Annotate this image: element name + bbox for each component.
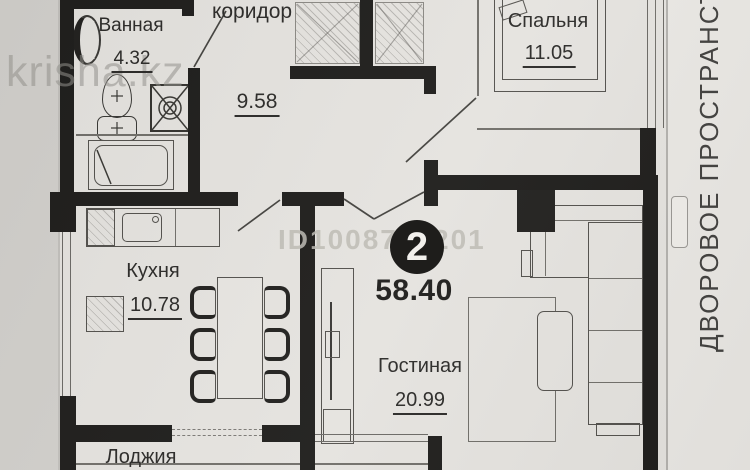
closet-left [295,2,360,64]
corridor-area: 9.58 [235,90,280,114]
double-door-leaf-left [344,199,374,219]
toilet-tank [97,116,137,141]
living-room-window [315,434,428,442]
bedroom-door-leaf [406,98,476,162]
bathroom-label: Ванная [98,15,163,37]
listing-id-watermark: ID1008723201 [278,224,486,256]
kitchen-label: Кухня [126,260,180,283]
wall-bathroom-right [188,68,200,198]
dining-table [217,277,263,399]
wall-loggia-left-seg [74,425,172,442]
tv-console-box [325,331,340,358]
total-area: 58.40 [375,274,453,308]
room-count: 2 [406,227,428,267]
bathtub-inner [94,145,168,186]
living-room-area: 20.99 [393,389,447,412]
wall-bottom-right-corner [428,436,442,470]
corridor-label: коридор [212,0,292,24]
floor-plan-photo: krisha.kz ID1008723201 2 58.40 Ванная 4.… [0,0,750,470]
dining-chair [190,328,216,361]
kitchen-stove [87,209,115,246]
dining-chair [190,286,216,319]
wall-left-outer [60,0,74,198]
wall-bedroom-bottom [424,175,656,190]
wall-shaft-block [517,190,555,232]
sofa-foot-rest [596,423,640,436]
bathroom-area: 4.32 [112,48,153,70]
double-door-leaf-right [374,192,424,219]
bedroom-label: Спальня [508,10,588,33]
courtyard-side-label: ДВОРОВОЕ ПРОСТРАНСТВО [694,0,725,352]
wall-closet-divider [360,0,373,76]
kitchen-window [62,232,71,396]
kitchen-door-leaf [238,200,280,231]
room-count-badge: 2 [390,220,444,274]
bathroom-counter-line [76,134,189,136]
wall-loggia-left [60,396,76,470]
loggia-label: Лоджия [106,446,177,469]
dining-chair [190,370,216,403]
dining-chair [264,370,290,403]
dining-chair [264,286,290,319]
wall-right-outer [643,175,658,470]
facade-balcony-detail [671,196,688,248]
counter-divider [175,209,176,246]
bedroom-wall-face-bottom [477,128,647,130]
wall-closet-cap [424,66,436,94]
closet-right [375,2,424,64]
balcony-door-threshold [172,429,262,436]
sofa-side-pillow [521,250,533,277]
bedroom-area: 11.05 [523,42,576,65]
dining-chair [264,328,290,361]
kitchen-faucet [152,216,159,223]
fridge [86,296,124,332]
coffee-table [537,311,573,391]
living-room-label: Гостиная [378,355,462,378]
sofa-seam-1 [589,278,642,279]
kitchen-area: 10.78 [128,294,182,317]
wall-bedroom-window-block [640,128,656,178]
facade-outline-line [666,0,668,470]
wall-kitchen-top [60,192,238,206]
sofa-seam-2 [589,330,642,331]
wall-bathroom-right-stub [182,0,194,16]
bedroom-wall-face-left [477,0,479,96]
site-watermark: krisha.kz [6,48,185,97]
sofa-seam-3 [589,382,642,383]
sofa-right-section [588,222,643,425]
bedroom-window-mid-line [655,0,656,128]
wall-bathroom-top [74,0,192,9]
wall-loggia-right-seg [262,425,315,442]
